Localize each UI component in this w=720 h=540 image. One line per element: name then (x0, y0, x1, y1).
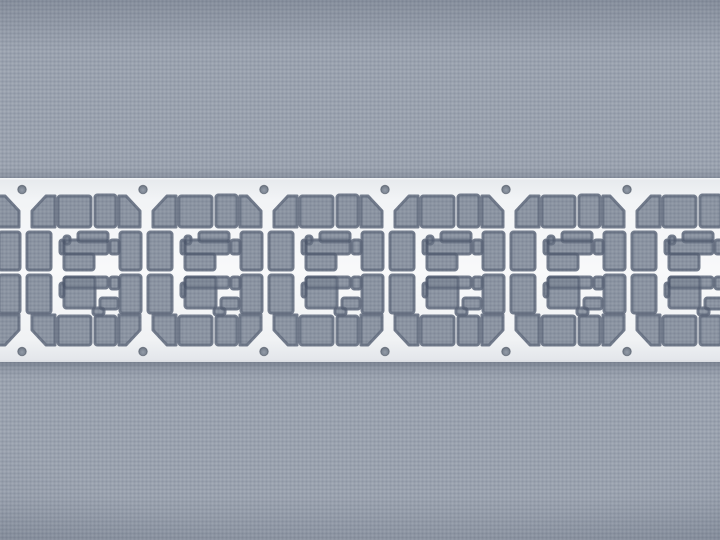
sprocket-hole (381, 347, 390, 356)
etched-slot (483, 232, 504, 270)
etched-slot (665, 240, 669, 254)
etched-slot (548, 277, 579, 308)
etched-slot (594, 240, 603, 254)
etched-slot (27, 232, 51, 270)
etched-slot (60, 283, 64, 297)
etched-slot (64, 240, 108, 254)
etched-slot (421, 316, 454, 345)
lead-frame-strip (0, 0, 720, 540)
etched-slot (483, 275, 504, 313)
etched-slot (669, 277, 700, 308)
etched-slot (698, 308, 709, 315)
etched-slot (700, 195, 720, 227)
etched-slot (542, 316, 575, 345)
etched-slot (64, 277, 95, 308)
etched-slot (306, 240, 350, 254)
etched-slot (548, 254, 578, 270)
etched-slot (179, 316, 212, 345)
etched-slot (456, 308, 467, 315)
etched-slot (663, 196, 696, 227)
etched-slot (427, 277, 458, 308)
etched-slot (335, 308, 346, 315)
etched-slot (302, 240, 306, 254)
etched-slot (427, 254, 457, 270)
etched-slot (632, 275, 656, 313)
etched-slot (58, 316, 91, 345)
etched-slot (548, 240, 592, 254)
etched-slot (241, 275, 262, 313)
lead-frame-unit (269, 195, 383, 345)
etched-slot (60, 240, 64, 254)
etched-slot (120, 275, 141, 313)
etched-slot (302, 283, 306, 297)
etched-slot (511, 275, 535, 313)
lead-frame-unit (390, 195, 504, 345)
etched-slot (179, 196, 212, 227)
etched-slot (473, 277, 482, 289)
etched-slot (214, 308, 225, 315)
etched-slot (362, 232, 383, 270)
etched-slot (185, 277, 216, 308)
etched-slot (458, 316, 479, 345)
etched-slot (337, 316, 358, 345)
etched-slot (120, 232, 141, 270)
etched-slot (473, 240, 482, 254)
etched-slot (337, 195, 358, 227)
etched-slot (390, 232, 414, 270)
lead-frame-unit (0, 195, 20, 345)
etched-slot (231, 277, 240, 289)
sprocket-hole (260, 347, 269, 356)
etched-slot (542, 196, 575, 227)
etched-slot (95, 195, 116, 227)
etched-slot (216, 195, 237, 227)
etched-slot (0, 275, 20, 313)
etched-slot (216, 316, 237, 345)
sprocket-hole (139, 347, 148, 356)
etched-slot (544, 240, 548, 254)
etched-slot (604, 275, 625, 313)
etched-slot (148, 275, 172, 313)
etched-slot (632, 232, 656, 270)
etched-slot (665, 283, 669, 297)
etched-slot (669, 254, 699, 270)
sprocket-hole (139, 185, 148, 194)
etched-slot (0, 232, 20, 270)
etched-slot (663, 316, 696, 345)
etched-slot (306, 277, 337, 308)
photo-root (0, 0, 720, 540)
etched-slot (577, 308, 588, 315)
etched-slot (58, 196, 91, 227)
etched-slot (185, 240, 229, 254)
etched-slot (241, 232, 262, 270)
etched-slot (95, 316, 116, 345)
etched-slot (579, 195, 600, 227)
sprocket-hole (18, 347, 27, 356)
lead-frame-unit (148, 195, 262, 345)
lead-frame-unit (27, 195, 141, 345)
etched-slot (544, 283, 548, 297)
etched-slot (231, 240, 240, 254)
etched-slot (300, 196, 333, 227)
etched-slot (669, 240, 713, 254)
etched-slot (362, 275, 383, 313)
etched-slot (27, 275, 51, 313)
etched-slot (594, 277, 603, 289)
lead-frame-unit (511, 195, 625, 345)
etched-slot (110, 277, 119, 289)
etched-slot (421, 196, 454, 227)
etched-slot (511, 232, 535, 270)
etched-slot (604, 232, 625, 270)
etched-slot (110, 240, 119, 254)
etched-slot (352, 277, 361, 289)
etched-slot (181, 240, 185, 254)
sprocket-hole (502, 347, 511, 356)
etched-slot (715, 240, 720, 254)
sprocket-hole (381, 185, 390, 194)
sprocket-hole (502, 185, 511, 194)
sprocket-hole (623, 347, 632, 356)
etched-slot (93, 308, 104, 315)
etched-slot (390, 275, 414, 313)
etched-slot (269, 232, 293, 270)
etched-slot (458, 195, 479, 227)
etched-slot (423, 240, 427, 254)
etched-slot (185, 254, 215, 270)
sprocket-hole (18, 185, 27, 194)
sprocket-hole (260, 185, 269, 194)
etched-slot (352, 240, 361, 254)
etched-slot (269, 275, 293, 313)
etched-slot (306, 254, 336, 270)
sprocket-hole (623, 185, 632, 194)
etched-slot (423, 283, 427, 297)
etched-slot (181, 283, 185, 297)
etched-slot (148, 232, 172, 270)
etched-slot (715, 277, 720, 289)
etched-slot (700, 316, 720, 345)
etched-slot (300, 316, 333, 345)
etched-slot (579, 316, 600, 345)
etched-slot (64, 254, 94, 270)
etched-slot (427, 240, 471, 254)
